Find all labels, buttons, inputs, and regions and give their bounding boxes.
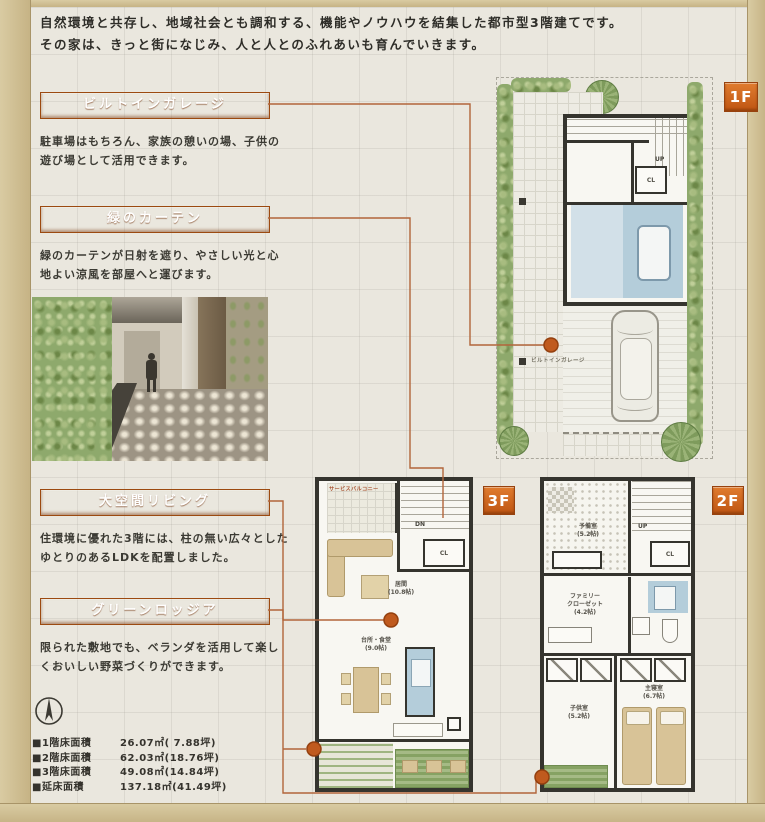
tree [499,426,529,456]
inner-wall [628,481,631,573]
kitchen-counter [405,647,435,717]
area-row-total: ■延床面積 137.18㎡(41.49坪) [32,781,282,796]
garage-label: ビルトインガレージ [531,356,585,364]
master-bedroom-closet [620,658,652,682]
chair [341,693,351,705]
closet-1f: CL [635,166,667,194]
landscaping-right [687,82,703,446]
planter-pot [450,760,466,773]
kids-room-closet [546,658,578,682]
feature-title: 大空間リビング [41,490,269,514]
master-bedroom-label: 主寝室 (6.7帖) [632,685,676,701]
floor-badge-2f: 2F [712,486,744,515]
dining-kitchen-label: 台所・食堂 (9.0帖) [347,637,405,653]
family-closet-counter [548,627,592,643]
living-room-label: 居間 (10.8帖) [377,581,425,597]
photo-green-curtain-foliage [32,297,112,461]
floor-badge-3f: 3F [483,486,515,515]
feature-title: ビルトインガレージ [41,93,269,117]
chair [381,693,391,705]
bed [622,707,652,785]
floor-plan-2f: 予備室 (5.2帖) UP CL ファミリー クローゼット (4.2帖) 子供室… [540,477,695,792]
frame-right [747,0,765,822]
feature-box-green-curtain: 緑のカーテン [40,206,270,233]
dining-table [353,667,379,713]
landscaping-top [511,78,571,92]
feature-title: 緑のカーテン [41,207,269,231]
sofa [327,539,393,557]
feature-desc-large-living: 住環境に優れた3階には、柱の無い広々としたゆとりのあるLDKを配置しました。 [40,530,290,567]
refrigerator [447,717,461,731]
site-marker [519,358,526,365]
building-1f: UP CL [563,114,691,306]
tree [661,422,701,462]
brochure-page: 自然環境と共存し、地域社会とも調和する、機能やノウハウを結集した都市型3階建てで… [0,0,765,822]
compass-north-icon [33,695,65,727]
toilet [662,619,678,643]
feature-title: グリーンロッジア [41,599,269,623]
area-label: ■延床面積 [32,781,120,796]
floor-badge-1f: 1F [724,82,758,112]
frame-bottom [0,803,765,822]
floor-plan-1f: UP CL ビルトインガレージ [497,78,712,458]
area-value: 137.18㎡(41.49坪) [120,781,227,796]
loggia-deck-3f [319,743,393,788]
washroom-1f [571,205,623,298]
floor-area-table: ■1階床面積 26.07㎡( 7.88坪) ■2階床面積 62.03㎡(18.7… [32,737,282,795]
bed [656,707,686,785]
master-bedroom-closet [654,658,686,682]
spare-room-label: 予備室 (5.2帖) [566,523,610,539]
headline-line-1: 自然環境と共存し、地域社会とも調和する、機能やノウハウを結集した都市型3階建てで… [40,12,740,34]
frame-left [0,0,31,822]
inner-wall [397,481,400,571]
kitchen-island [393,723,443,737]
balcony-planter-2f [544,765,608,788]
area-row-2f: ■2階床面積 62.03㎡(18.76坪) [32,752,282,767]
closet-3f: CL [423,539,465,567]
inner-wall [567,140,649,143]
site-marker [519,198,526,205]
inner-wall [631,140,634,202]
staircase-3f [401,481,469,535]
planter-pot [402,760,418,773]
headline: 自然環境と共存し、地域社会とも調和する、機能やノウハウを結集した都市型3階建てで… [40,12,740,56]
feature-box-large-living: 大空間リビング [40,489,270,516]
bathroom-1f [623,205,683,298]
feature-box-green-loggia: グリーンロッジア [40,598,270,625]
inner-wall [397,569,469,572]
inner-wall [544,653,691,656]
garage-1f [563,306,699,432]
planter-pot [426,760,442,773]
area-label: ■3階床面積 [32,766,120,781]
area-value: 62.03㎡(18.76坪) [120,752,219,767]
washbasin [654,586,676,610]
green-curtain-photo [32,297,268,461]
bathroom-2f [648,581,688,613]
spare-room-closet [552,551,602,569]
area-value: 26.07㎡( 7.88坪) [120,737,216,752]
inner-wall [319,739,469,742]
headline-line-2: その家は、きっと街になじみ、人と人とのふれあいも育んでいきます。 [40,34,740,56]
service-balcony-label: サービスバルコニー [329,485,378,493]
car-top-view [611,310,659,422]
frame-top [0,0,765,7]
stairs-dn-label: DN [415,521,425,528]
area-label: ■2階床面積 [32,752,120,767]
washer [632,617,650,635]
kids-room-label: 子供室 (5.2帖) [558,705,600,721]
chair [341,673,351,685]
closet-2f: CL [650,541,690,567]
area-value: 49.08㎡(14.84坪) [120,766,219,781]
stairs-up-label: UP [638,523,647,530]
feature-desc-built-in-garage: 駐車場はもちろん、家族の憩いの場、子供の遊び場として活用できます。 [40,133,290,170]
feature-desc-green-loggia: 限られた敷地でも、ベランダを活用して楽しくおいしい野菜づくりができます。 [40,639,290,676]
inner-wall [628,577,631,653]
kids-room-closet [580,658,612,682]
feature-desc-green-curtain: 緑のカーテンが日射を遮り、やさしい光と心地よい涼風を部屋へと運びます。 [40,247,290,284]
area-row-3f: ■3階床面積 49.08㎡(14.84坪) [32,766,282,781]
kitchen-sink [411,659,431,687]
photo-person-silhouette [144,353,160,393]
area-row-1f: ■1階床面積 26.07㎡( 7.88坪) [32,737,282,752]
loggia-planters-3f [395,749,469,788]
landscaping-left [497,84,513,446]
chair [381,673,391,685]
area-label: ■1階床面積 [32,737,120,752]
bathtub [637,225,671,281]
family-closet-label: ファミリー クローゼット (4.2帖) [558,593,612,616]
feature-box-built-in-garage: ビルトインガレージ [40,92,270,119]
spare-room-hatch [548,487,574,513]
inner-wall [614,656,617,788]
floor-plan-3f: サービスバルコニー DN CL 居間 (10.8帖) 台所・食堂 (9.0帖) [315,477,473,792]
stairs-up-label: UP [655,156,664,163]
inner-wall [544,573,691,576]
